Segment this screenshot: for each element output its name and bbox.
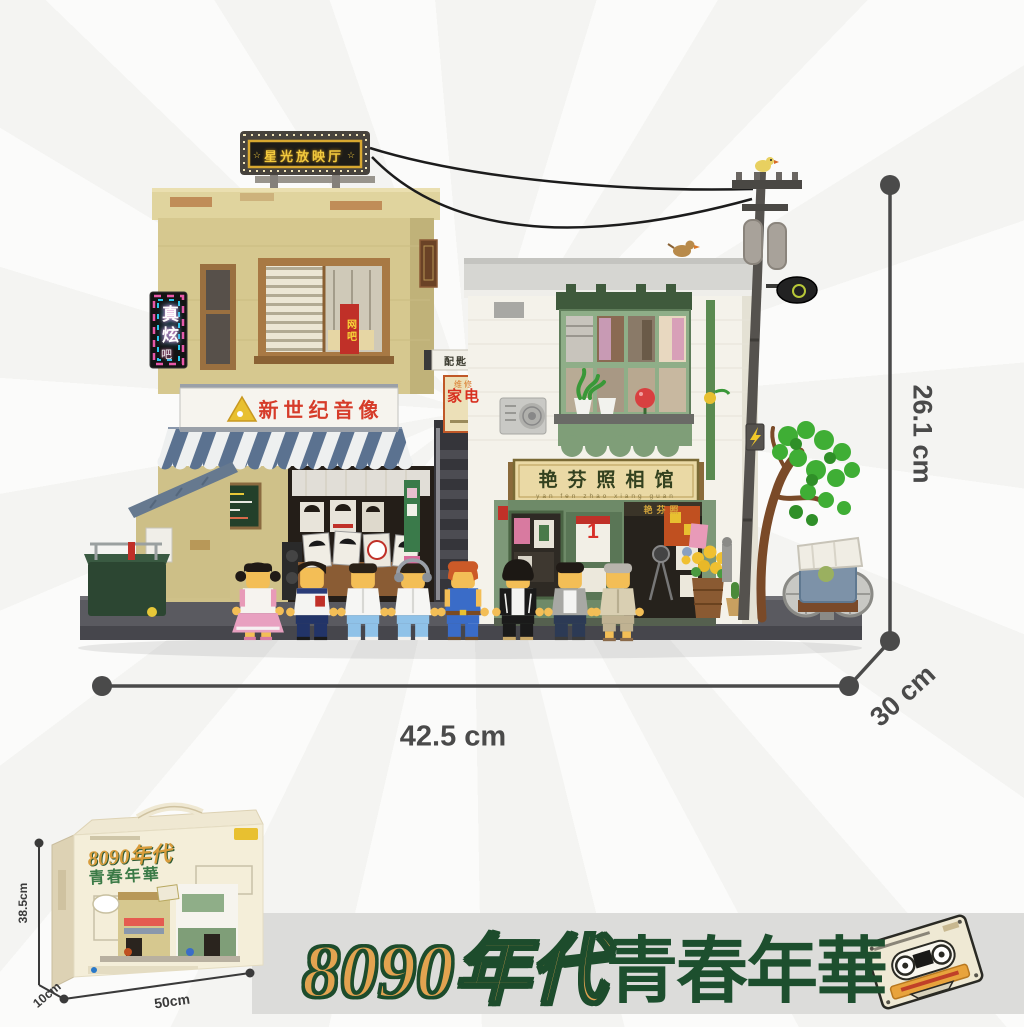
air-conditioner (500, 398, 546, 434)
neon-sign (150, 292, 187, 368)
photo-studio-sign (508, 460, 704, 502)
roof-bird (668, 241, 700, 258)
cassette-tape-icon (864, 914, 983, 1009)
lightning-sign (746, 424, 764, 450)
product-illustration (0, 0, 1024, 1027)
green-window (554, 284, 694, 457)
rickshaw-cart (784, 538, 872, 620)
av-shop-sign (180, 384, 398, 432)
product-page: ☆ 星光放映厅 ☆ 真炫 吧 新世纪音像 配匙 维修 家电 网吧 艳芬照相馆 y… (0, 0, 1024, 1027)
album-posters (300, 500, 384, 532)
marquee-sign (240, 131, 370, 175)
dumpster (84, 542, 170, 617)
audio-shop-building (84, 131, 440, 617)
striped-awning (158, 428, 413, 470)
pole-bird (755, 157, 779, 172)
product-box (35, 807, 264, 1004)
